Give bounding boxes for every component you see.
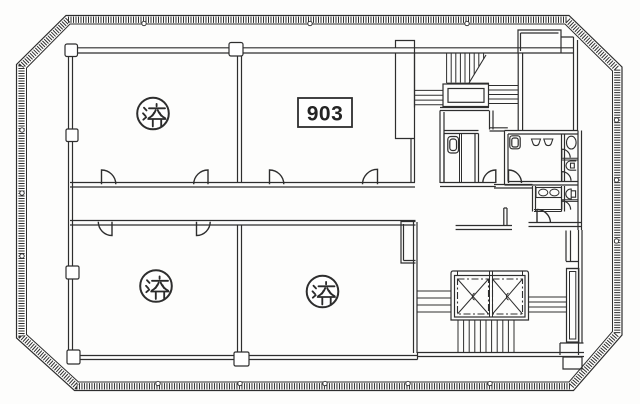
svg-text:903: 903	[307, 103, 344, 126]
